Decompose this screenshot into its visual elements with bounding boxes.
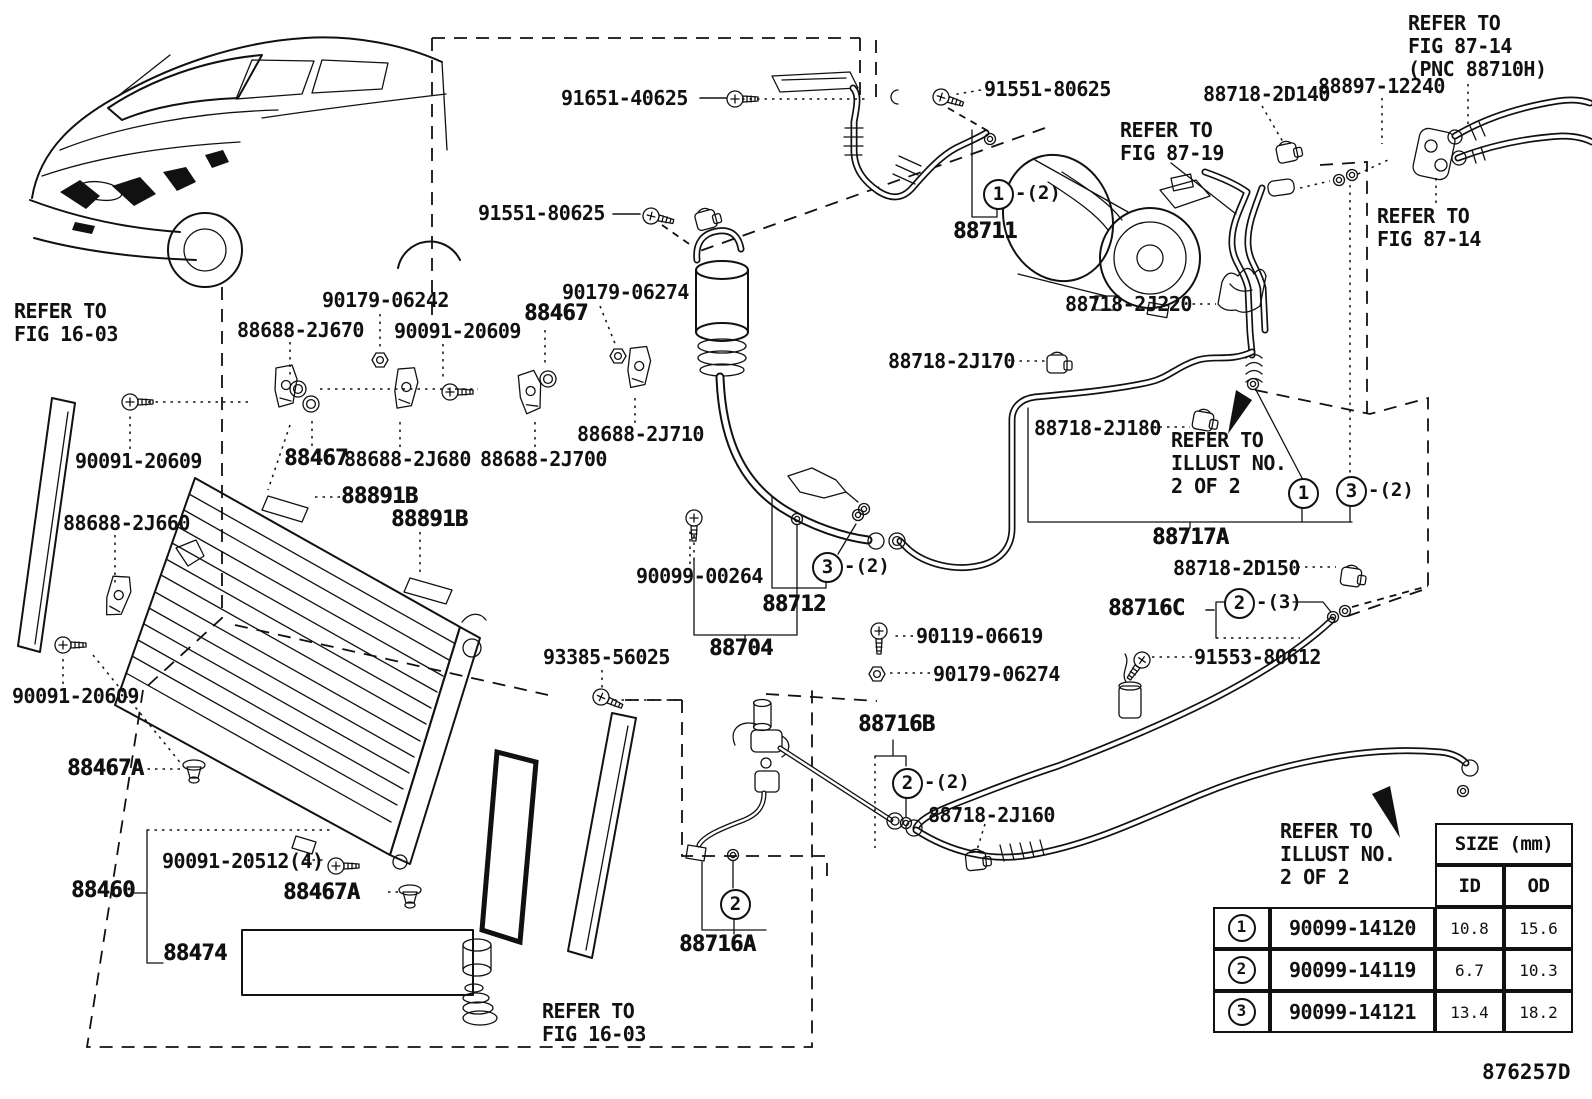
refer-note: REFER TOFIG 16-03: [542, 1000, 646, 1046]
screw-icon: [871, 623, 887, 654]
part-number-label: 88460: [71, 880, 135, 902]
table-row-callout: 3: [1213, 991, 1270, 1033]
callout-2-badge: 2: [1224, 588, 1255, 619]
part-number-label: 90091-20609: [75, 451, 202, 471]
part-number-label: 88718-2J220: [1065, 294, 1192, 314]
callout-2-badge: 2: [892, 768, 923, 799]
part-number-label: 88467: [524, 303, 588, 325]
screw-icon: [1122, 649, 1153, 684]
screw-icon: [442, 384, 473, 400]
mount-bracket-icon: [393, 366, 419, 410]
refer-note: REFER TOILLUST NO.2 OF 2: [1280, 820, 1395, 889]
part-number-label: 91651-40625: [561, 88, 688, 108]
nut-icon: [869, 667, 885, 681]
mount-bracket-icon: [275, 365, 297, 407]
part-number-label: 88716A: [679, 934, 755, 956]
refer-note: REFER TOFIG 87-14: [1377, 205, 1481, 251]
callout-quantity: -(2): [1015, 182, 1061, 204]
part-number-label: 88718-2D150: [1173, 558, 1300, 578]
callout-badge: 3-(2): [812, 552, 843, 583]
pipe-clamp-icon: [1340, 564, 1368, 588]
callout-quantity: -(2): [924, 771, 970, 793]
table-row-part: 90099-14121: [1270, 991, 1435, 1033]
table-row-callout: 1: [1213, 907, 1270, 949]
screw-icon: [328, 858, 359, 874]
table-row-od: 18.2: [1504, 991, 1573, 1033]
mount-bracket-icon: [103, 573, 135, 619]
screw-icon: [55, 637, 86, 653]
part-number-label: 88688-2J680: [344, 449, 471, 469]
pad-88891b-1: [262, 496, 308, 522]
callout-3-badge: 3: [812, 552, 843, 583]
part-number-label: 90099-00264: [636, 566, 763, 586]
part-number-label: 88716B: [858, 714, 934, 736]
part-number-label: 90091-20609: [12, 686, 139, 706]
size-table-col-id: ID: [1435, 865, 1504, 907]
part-number-label: 88711: [953, 221, 1017, 243]
part-number-label: 90179-06274: [933, 664, 1060, 684]
callout-1-badge: 1: [983, 179, 1014, 210]
part-number-label: 88718-2J180: [1034, 418, 1161, 438]
oring-icon: [985, 134, 996, 145]
part-number-label: 91551-80625: [984, 79, 1111, 99]
part-number-label: 90179-06274: [562, 282, 689, 302]
part-number-label: 90179-06242: [322, 290, 449, 310]
table-row-part: 90099-14119: [1270, 949, 1435, 991]
mount-bracket-icon: [627, 345, 652, 388]
part-number-label: 90119-06619: [916, 626, 1043, 646]
oring-icon: [1248, 379, 1259, 390]
oring-icon: [1340, 606, 1351, 617]
condenser: [18, 398, 636, 1025]
oring-icon: [1334, 175, 1345, 186]
table-row-od: 10.3: [1504, 949, 1573, 991]
refer-note: REFER TOFIG 87-19: [1120, 119, 1224, 165]
grommet-icon: [183, 760, 205, 783]
part-number-label: 88712: [762, 594, 826, 616]
side-seal-center: [568, 713, 636, 958]
part-number-label: 91553-80612: [1194, 647, 1321, 667]
pipe-clamp-icon: [1275, 138, 1304, 163]
callout-badge: 2-(3): [1224, 588, 1255, 619]
screw-icon: [727, 91, 758, 107]
callout-3-badge: 3: [1228, 998, 1256, 1026]
part-number-label: 88688-2J710: [577, 424, 704, 444]
receiver-drier: [693, 205, 884, 549]
part-number-label: 91551-80625: [478, 203, 605, 223]
table-row-id: 10.8: [1435, 907, 1504, 949]
size-table-title: SIZE (mm): [1435, 823, 1573, 865]
table-row-part: 90099-14120: [1270, 907, 1435, 949]
callout-badge: 1-(2): [983, 179, 1014, 210]
oring-icon: [540, 371, 556, 387]
callout-2-badge: 2: [1228, 956, 1256, 984]
size-table-col-od: OD: [1504, 865, 1573, 907]
part-number-label: 88891B: [341, 486, 417, 508]
parts-diagram: SIZE (mm) ID OD 1 90099-14120 10.8 15.6 …: [0, 0, 1592, 1099]
part-number-label: 88467A: [283, 882, 359, 904]
screw-icon: [590, 686, 625, 713]
callout-1-badge: 1: [1228, 914, 1256, 942]
part-number-label: 90091-20512(4): [162, 851, 324, 871]
callout-quantity: -(2): [844, 555, 890, 577]
nut-icon: [372, 353, 388, 367]
callout-3-badge: 3: [1336, 476, 1367, 507]
callout-quantity: -(3): [1256, 591, 1302, 613]
callout-badge: 2-(2): [892, 768, 923, 799]
part-number-label: 88688-2J700: [480, 449, 607, 469]
table-row-id: 13.4: [1435, 991, 1504, 1033]
oring-icon: [1347, 170, 1358, 181]
pipe-clamp-icon: [1047, 352, 1072, 373]
table-row-id: 6.7: [1435, 949, 1504, 991]
part-number-label: 93385-56025: [543, 647, 670, 667]
vehicle-sketch: [30, 37, 460, 287]
refer-note: REFER TOFIG 87-14(PNC 88710H): [1408, 12, 1547, 81]
part-number-label: 88718-2J160: [928, 805, 1055, 825]
nut-icon: [610, 349, 626, 363]
oring-icon: [303, 396, 319, 412]
part-number-label: 88704: [709, 638, 773, 660]
part-number-label: 88716C: [1108, 598, 1184, 620]
refer-note: REFER TOILLUST NO.2 OF 2: [1171, 429, 1286, 498]
oring-icon: [1458, 786, 1469, 797]
screw-icon: [641, 206, 675, 229]
callout-2-badge: 2: [720, 889, 751, 920]
refer-note: REFER TOFIG 16-03: [14, 300, 118, 346]
callout-badge: 1: [1288, 478, 1319, 509]
part-number-label: 88717A: [1152, 527, 1228, 549]
part-number-label: 88718-2J170: [888, 351, 1015, 371]
part-number-label: 88467: [284, 448, 348, 470]
oring-icon: [728, 850, 739, 861]
callout-quantity: -(2): [1368, 479, 1414, 501]
callout-badge: 2: [720, 889, 751, 920]
ac-pipes: [686, 72, 1592, 861]
part-number-label: 88688-2J660: [63, 513, 190, 533]
part-number-label: 88891B: [391, 509, 467, 531]
oring-icon: [290, 381, 306, 397]
part-number-label: 88718-2D140: [1203, 84, 1330, 104]
snap-ring-icon: [891, 90, 898, 104]
grommet-icon: [399, 885, 421, 908]
part-number-label: 88474: [163, 943, 227, 965]
figure-code: 876257D: [1482, 1060, 1571, 1084]
part-number-label: 88688-2J670: [237, 320, 364, 340]
table-row-od: 15.6: [1504, 907, 1573, 949]
oring-icon: [859, 504, 870, 515]
callout-badge: 3-(2): [1336, 476, 1367, 507]
air-guide: [482, 752, 536, 942]
table-row-callout: 2: [1213, 949, 1270, 991]
part-number-label: 90091-20609: [394, 321, 521, 341]
leader-lines: [63, 84, 1468, 963]
part-number-label: 88467A: [67, 758, 143, 780]
callout-1-badge: 1: [1288, 478, 1319, 509]
